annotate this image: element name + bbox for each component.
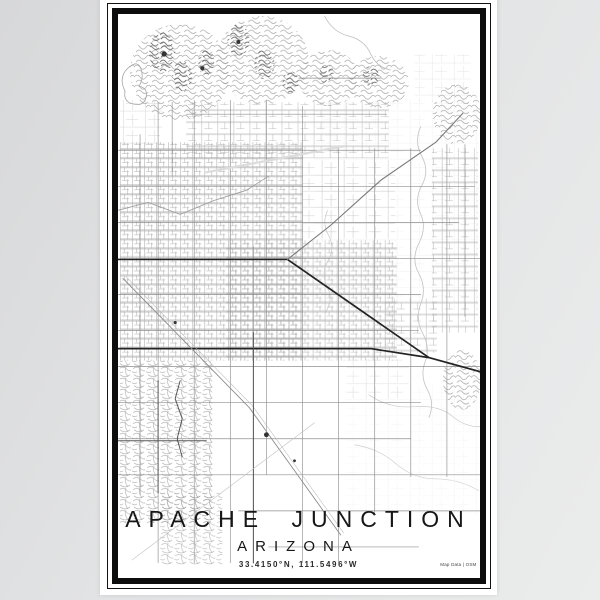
map-poster: APACHE JUNCTION ARIZONA 33.4150°N, 111.5…: [100, 0, 497, 595]
city-street-map: [118, 14, 480, 578]
photo-background: APACHE JUNCTION ARIZONA 33.4150°N, 111.5…: [0, 0, 600, 600]
map-frame: APACHE JUNCTION ARIZONA 33.4150°N, 111.5…: [112, 8, 486, 584]
map-data-credit: Map Data | OSM: [440, 562, 476, 568]
